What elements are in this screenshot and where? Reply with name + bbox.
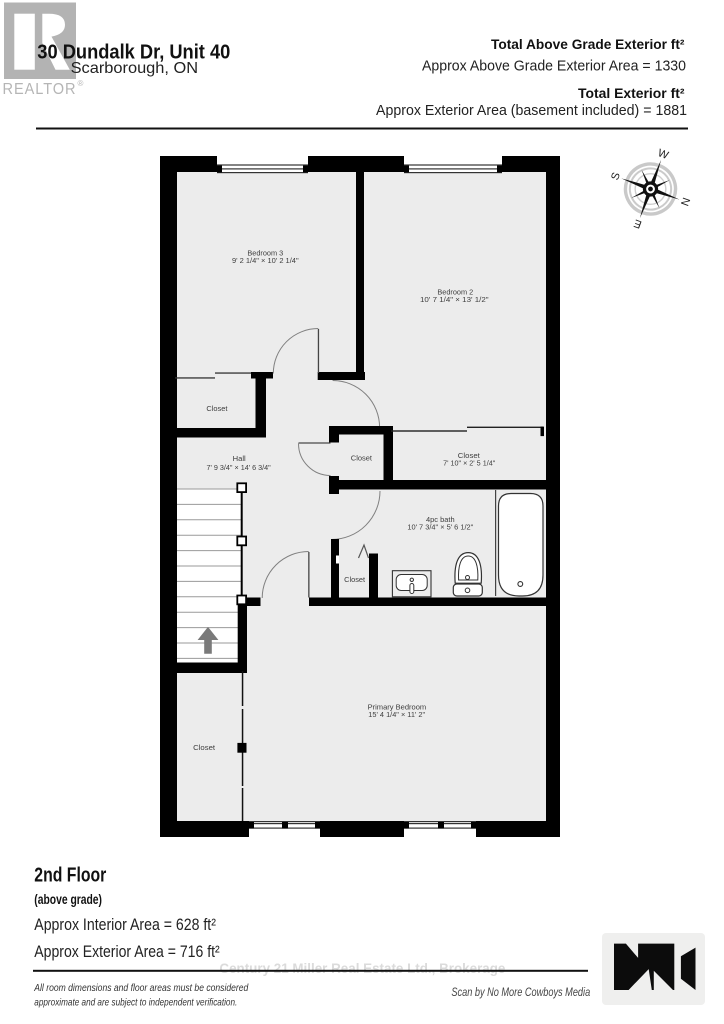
svg-text:Hall: Hall [233,454,246,463]
svg-text:10' 7 3/4" × 5' 6 1/2": 10' 7 3/4" × 5' 6 1/2" [407,523,473,532]
svg-text:Total Above Grade Exterior ft²: Total Above Grade Exterior ft² [491,37,685,52]
svg-text:®: ® [78,79,84,88]
svg-text:E: E [632,217,643,231]
svg-text:REALTOR: REALTOR [3,81,77,98]
svg-text:S: S [609,171,623,182]
svg-text:10' 7 1/4" × 13' 1/2": 10' 7 1/4" × 13' 1/2" [420,295,489,304]
svg-text:7' 10" × 2' 5 1/4": 7' 10" × 2' 5 1/4" [443,459,496,468]
svg-text:Closet: Closet [206,404,228,413]
svg-text:9' 2 1/4" × 10' 2 1/4": 9' 2 1/4" × 10' 2 1/4" [232,256,299,265]
svg-text:Closet: Closet [344,575,366,584]
svg-text:Century 21 Miller Real Estate: Century 21 Miller Real Estate Ltd., Brok… [219,960,505,976]
svg-text:7' 9 3/4" × 14' 6 3/4": 7' 9 3/4" × 14' 6 3/4" [206,463,271,472]
svg-text:Total Exterior ft²: Total Exterior ft² [578,86,685,101]
svg-text:2nd Floor: 2nd Floor [34,865,106,887]
svg-text:Approx Exterior Area = 716 ft²: Approx Exterior Area = 716 ft² [34,943,220,961]
svg-text:15' 4 1/4" × 11' 2": 15' 4 1/4" × 11' 2" [368,710,425,719]
svg-text:Approx Interior Area = 628 ft²: Approx Interior Area = 628 ft² [34,916,216,934]
svg-text:approximate and are subject to: approximate and are subject to independe… [34,998,237,1009]
svg-text:Approx Above Grade Exterior Ar: Approx Above Grade Exterior Area = 1330 [422,58,686,74]
svg-text:Scarborough, ON: Scarborough, ON [71,60,199,77]
svg-text:All room dimensions and floor: All room dimensions and floor areas must… [33,983,248,994]
svg-text:Approx Exterior Area (basement: Approx Exterior Area (basement included)… [376,103,687,119]
svg-text:(above grade): (above grade) [34,891,102,907]
svg-text:Closet: Closet [193,743,216,752]
svg-text:N: N [678,196,692,208]
svg-text:Scan by No More Cowboys Media: Scan by No More Cowboys Media [451,987,590,999]
svg-text:Closet: Closet [351,454,373,463]
svg-text:W: W [656,147,670,162]
